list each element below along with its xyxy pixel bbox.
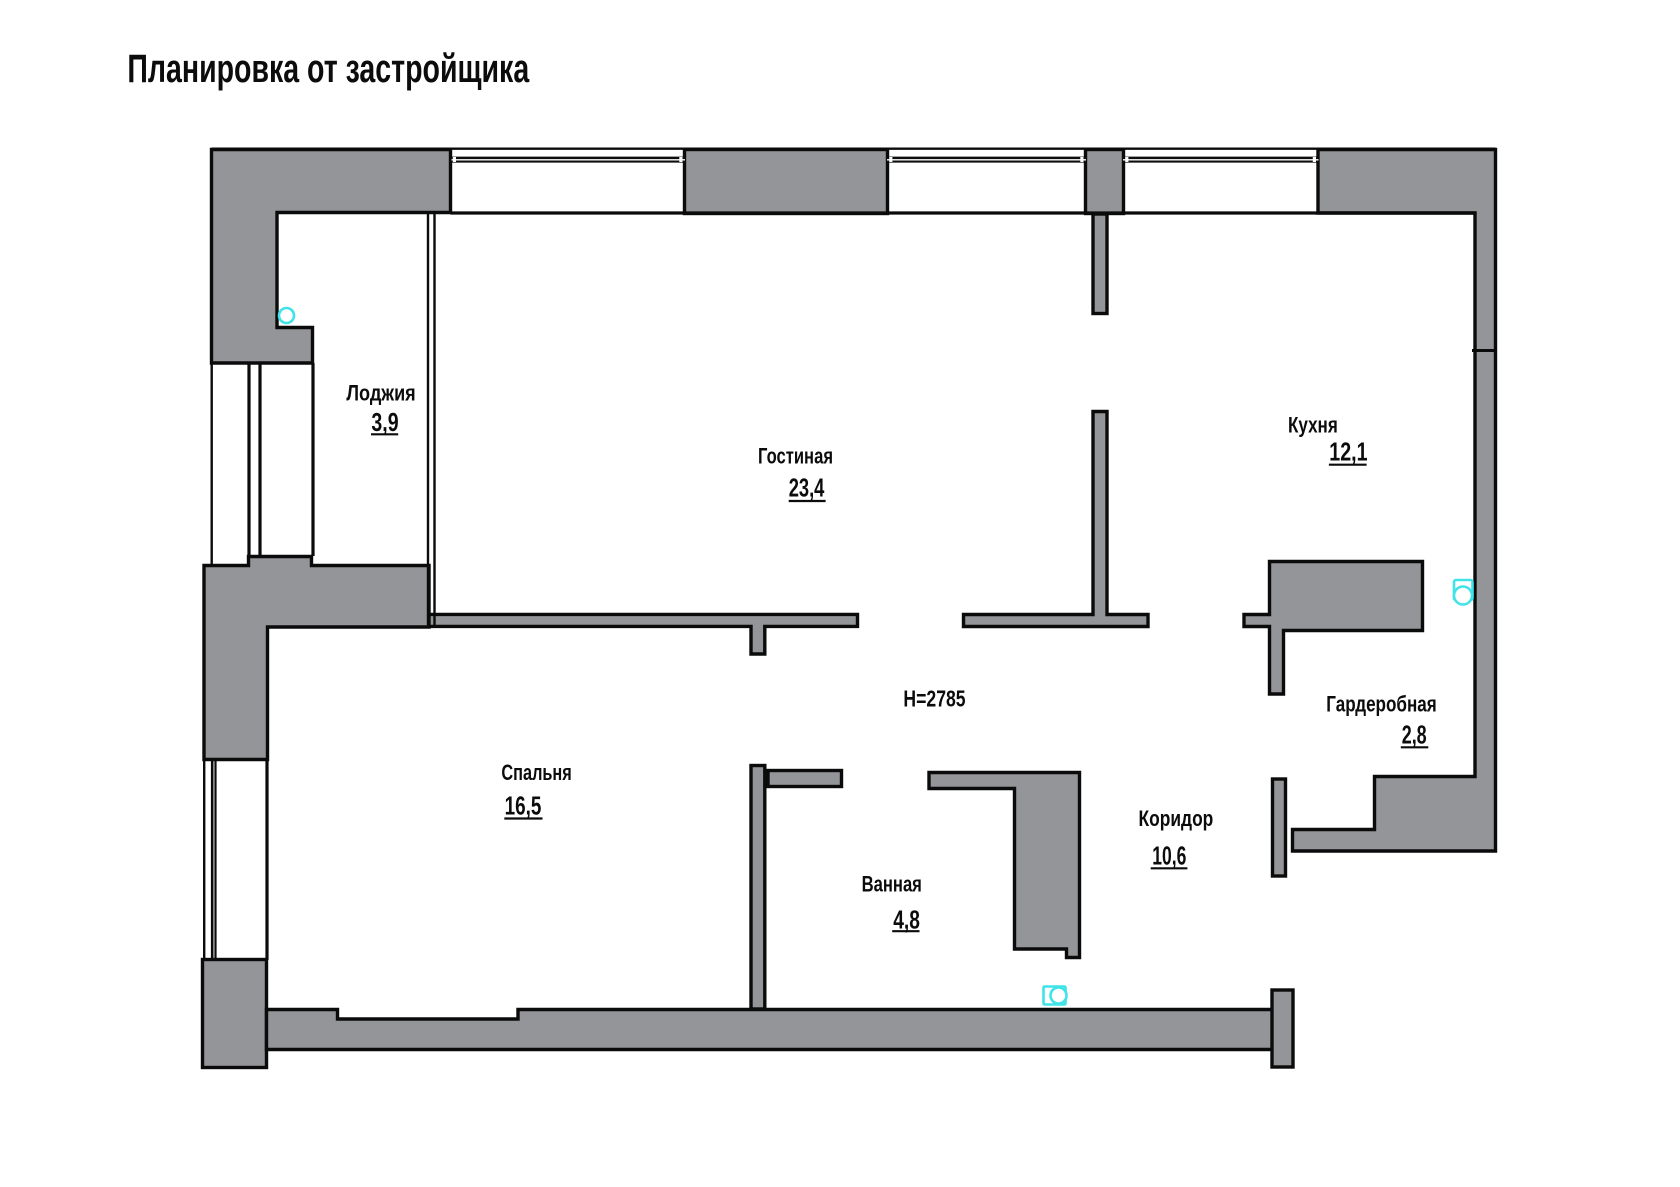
svg-text:Ванная: Ванная xyxy=(862,872,922,897)
svg-text:23,4: 23,4 xyxy=(789,475,825,503)
svg-text:Планировка от застройщика: Планировка от застройщика xyxy=(127,47,529,91)
svg-text:2,8: 2,8 xyxy=(1402,721,1427,749)
svg-text:Лоджия: Лоджия xyxy=(346,381,415,406)
svg-text:Кухня: Кухня xyxy=(1288,413,1338,438)
svg-text:3,9: 3,9 xyxy=(371,409,398,437)
svg-text:10,6: 10,6 xyxy=(1152,842,1186,870)
svg-text:Гардеробная: Гардеробная xyxy=(1326,692,1436,717)
svg-text:Гостиная: Гостиная xyxy=(758,443,833,468)
svg-text:Н=2785: Н=2785 xyxy=(903,686,965,712)
svg-text:12,1: 12,1 xyxy=(1329,439,1367,467)
svg-text:16,5: 16,5 xyxy=(505,793,542,821)
svg-text:Коридор: Коридор xyxy=(1139,806,1214,831)
svg-text:Спальня: Спальня xyxy=(501,760,571,785)
